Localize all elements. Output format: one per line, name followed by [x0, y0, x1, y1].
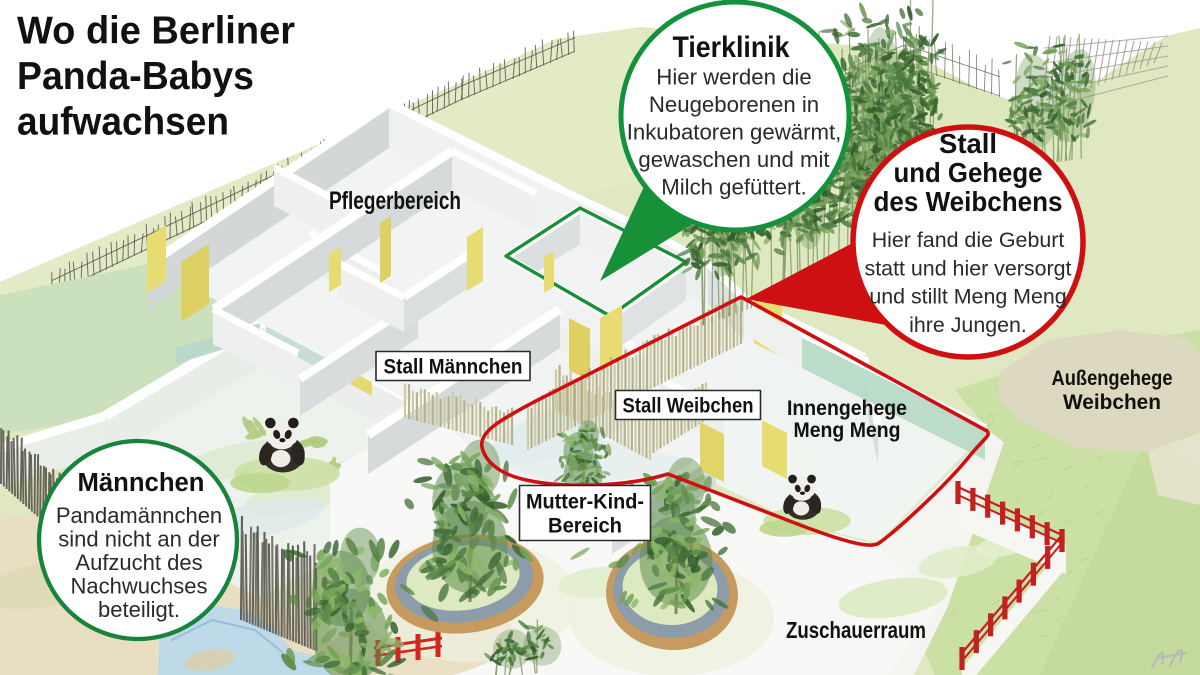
svg-text:Zuschauerraum: Zuschauerraum	[786, 617, 926, 643]
svg-text:Stall Männchen: Stall Männchen	[384, 356, 523, 379]
svg-text:Inkubatoren gewärmt,: Inkubatoren gewärmt,	[627, 120, 842, 145]
svg-text:und Gehege: und Gehege	[894, 157, 1043, 188]
svg-text:Pandamännchen: Pandamännchen	[56, 503, 222, 528]
svg-text:Nachwuchses: Nachwuchses	[71, 574, 208, 599]
svg-text:und stillt Meng Meng: und stillt Meng Meng	[869, 285, 1066, 309]
svg-text:sind nicht an der: sind nicht an der	[58, 527, 219, 552]
svg-text:Weibchen: Weibchen	[1063, 390, 1161, 414]
svg-text:Hier fand die Geburt: Hier fand die Geburt	[872, 228, 1065, 252]
svg-text:Hier werden die: Hier werden die	[656, 65, 811, 90]
svg-text:gewaschen und mit: gewaschen und mit	[638, 147, 829, 172]
svg-text:Stall: Stall	[939, 128, 997, 159]
svg-text:beteiligt.: beteiligt.	[98, 597, 180, 622]
svg-text:Mutter-Kind-: Mutter-Kind-	[526, 491, 644, 514]
svg-text:Meng Meng: Meng Meng	[794, 418, 901, 442]
svg-text:Stall Weibchen: Stall Weibchen	[623, 395, 754, 418]
svg-text:Wo die Berliner: Wo die Berliner	[17, 10, 295, 53]
svg-text:statt und hier versorgt: statt und hier versorgt	[865, 256, 1072, 280]
svg-text:Außengehege: Außengehege	[1052, 366, 1173, 390]
svg-text:Milch gefüttert.: Milch gefüttert.	[661, 174, 807, 199]
svg-text:Tierklinik: Tierklinik	[673, 31, 790, 64]
svg-text:Panda-Babys: Panda-Babys	[17, 55, 254, 98]
svg-text:ihre Jungen.: ihre Jungen.	[909, 313, 1027, 337]
svg-text:Innengehege: Innengehege	[787, 396, 907, 420]
svg-text:des Weibchens: des Weibchens	[874, 186, 1063, 217]
svg-text:Bereich: Bereich	[548, 515, 622, 538]
svg-text:Pflegerbereich: Pflegerbereich	[329, 187, 461, 215]
svg-text:Neugeborenen in: Neugeborenen in	[649, 92, 819, 117]
svg-text:aufwachsen: aufwachsen	[17, 101, 229, 144]
svg-text:Aufzucht des: Aufzucht des	[75, 550, 202, 575]
svg-text:Männchen: Männchen	[78, 469, 205, 497]
